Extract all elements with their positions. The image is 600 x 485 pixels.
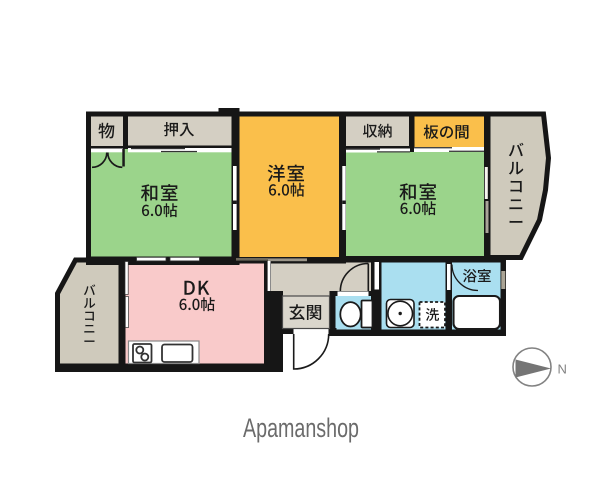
svg-text:Apamanshop: Apamanshop xyxy=(243,413,359,443)
svg-text:N: N xyxy=(558,362,567,377)
